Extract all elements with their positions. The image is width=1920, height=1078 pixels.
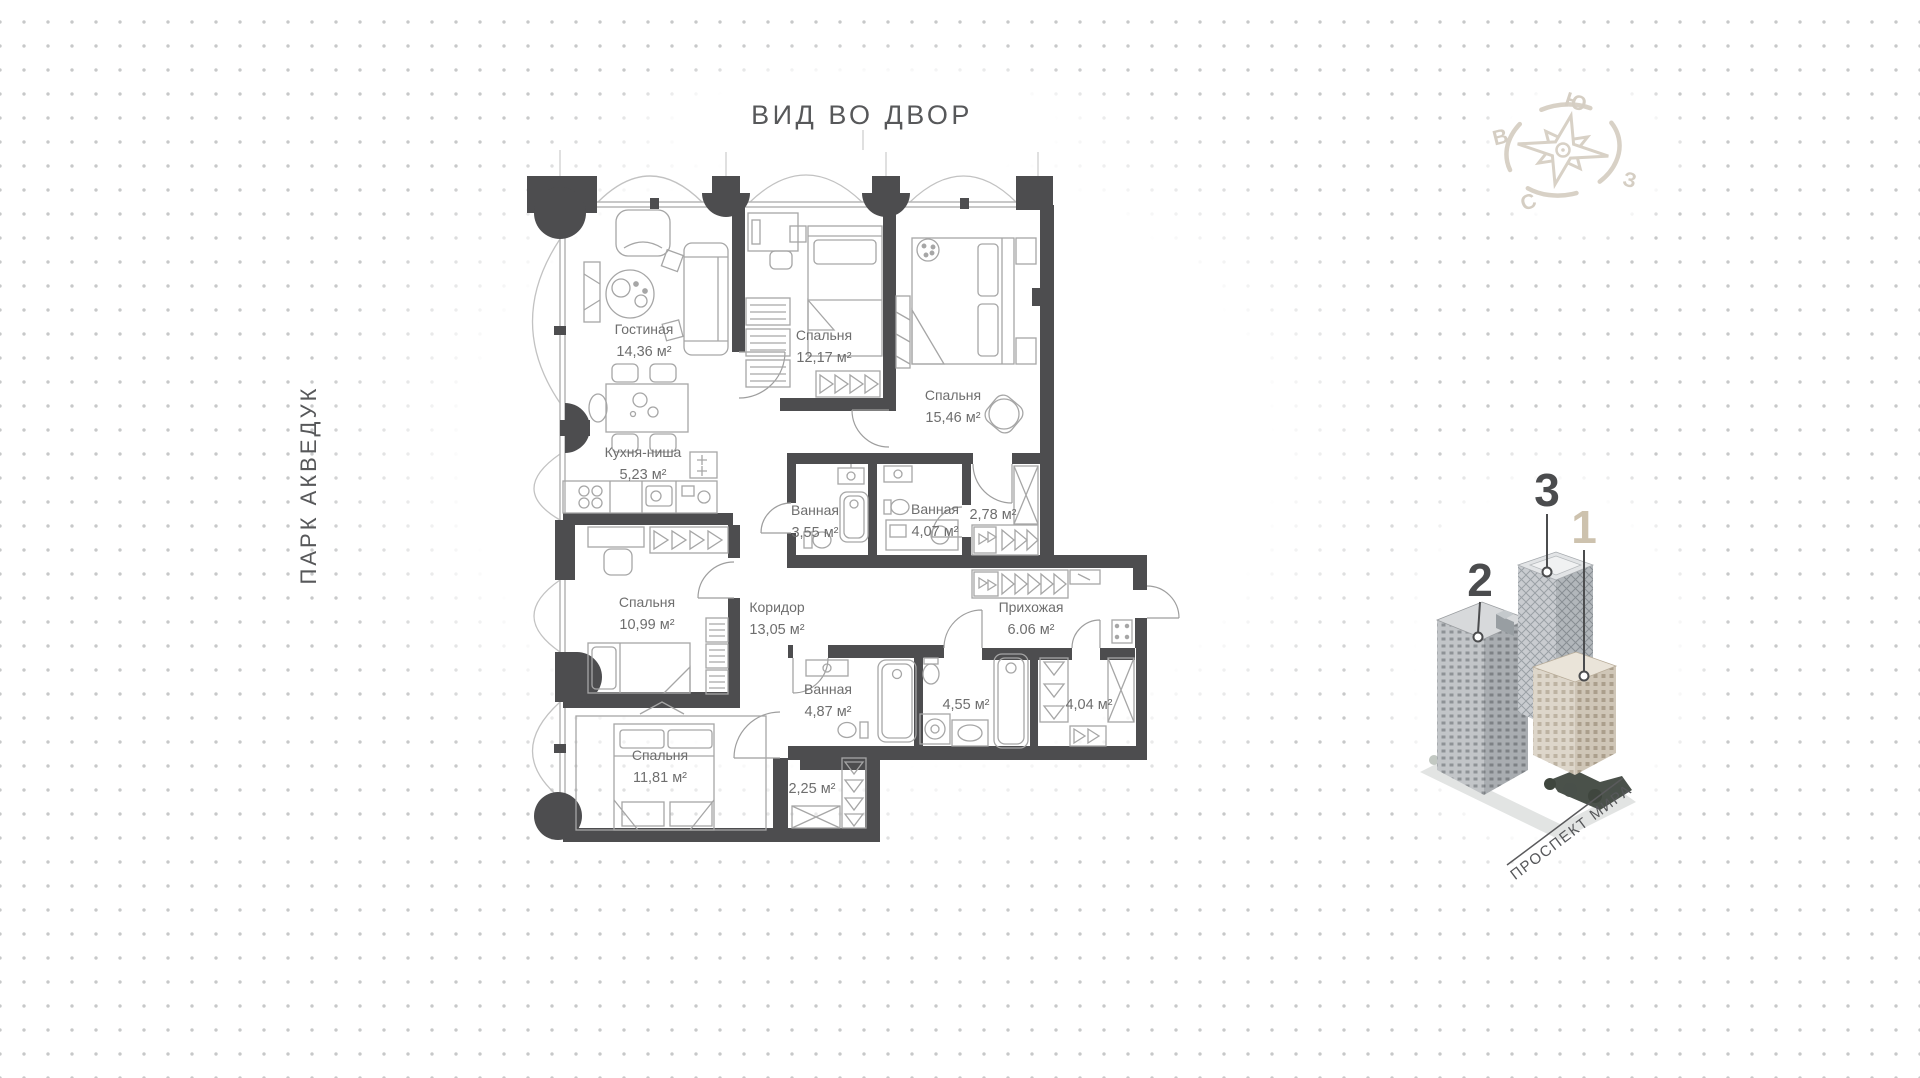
room-label-corridor: Коридор13,05 м² [749,597,804,641]
building-locator: 2 3 1 ПРОСПЕКТ МИРА [1400,440,1660,910]
tower-1 [1533,652,1616,775]
room-label-bedroom-1217: Спальня12,17 м² [796,325,852,369]
compass-rose: Ю В З С [1480,78,1640,218]
tower-1-number: 1 [1571,501,1597,553]
room-label-225: 2,25 м² [788,778,835,800]
sideboard-icon [584,262,600,322]
compass-star-icon [1518,116,1609,185]
compass-east-label: В [1490,124,1510,150]
tower-2-number: 2 [1467,554,1493,606]
bedroom1217-furniture [746,213,882,397]
armchair-icon [616,210,670,256]
room-label-bedroom-1099: Спальня10,99 м² [619,592,675,636]
room-label-bath-355: Ванная3,55 м² [791,500,839,544]
tower-3-dot [1543,568,1552,577]
page-canvas: ВИД ВО ДВОР ПАРК АКВЕДУК [0,0,1920,1078]
compass-west-label: З [1620,168,1638,193]
room-label-kitchen: Кухня-ниша5,23 м² [605,442,682,486]
compass-south-label: Ю [1562,88,1590,117]
dining-table-icon [589,364,688,452]
room-label-bedroom-1181: Спальня11,81 м² [632,745,688,789]
room-label-404: 4,04 м² [1065,694,1112,716]
room-label-455: 4,55 м² [942,694,989,716]
tower-3-number: 3 [1534,464,1560,516]
room-label-living: Гостиная14,36 м² [615,319,674,363]
page-title: ВИД ВО ДВОР [751,100,973,131]
park-side-label: ПАРК АКВЕДУК [296,386,322,585]
tower-1-dot [1580,672,1589,681]
coffee-table-icon [606,270,654,318]
room-label-hallway: Прихожая6.06 м² [999,597,1064,641]
floor-plan [505,130,1205,870]
tower-2 [1437,602,1528,795]
room-label-278: 2,78 м² [969,504,1016,526]
room-label-bedroom-1546: Спальня15,46 м² [925,385,981,429]
room-label-bath-487: Ванная4,87 м² [804,679,852,723]
room-label-bath-407: Ванная4,07 м² [911,499,959,543]
tower-2-dot [1474,633,1483,642]
